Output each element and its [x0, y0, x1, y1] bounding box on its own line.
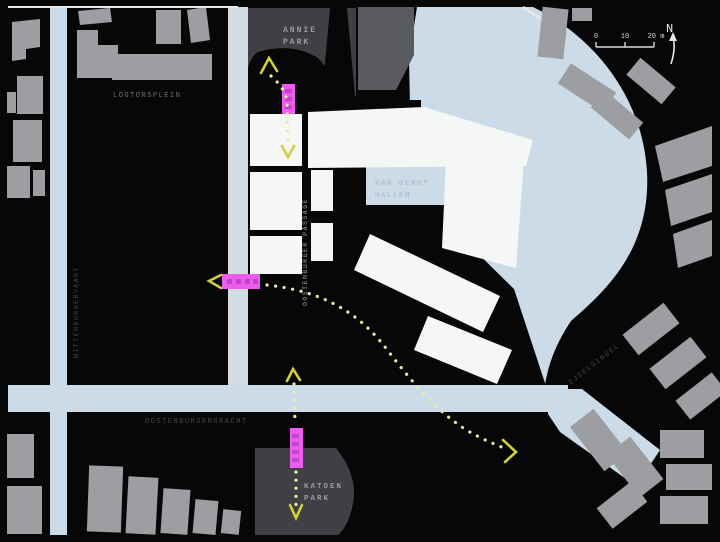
marker-dot: [227, 279, 232, 284]
site-building-a3: [250, 236, 302, 274]
building: [78, 8, 112, 25]
site-building-b2: [311, 223, 333, 261]
map-canvas: ANNIE PARK LOGTORSPLEIN WITTENBURGERVAAR…: [0, 0, 720, 542]
canal-west: [50, 7, 67, 535]
marker-dot: [236, 279, 241, 284]
marker-dot: [245, 279, 250, 284]
site-plan-map: ANNIE PARK LOGTORSPLEIN WITTENBURGERVAAR…: [0, 0, 720, 542]
street-center-strip: [228, 7, 248, 389]
marker-dot: [292, 442, 299, 446]
marker-dot: [292, 450, 299, 454]
halls-label-line1: VAN GENDT: [375, 180, 429, 188]
street-south-label: OOSTENBURGERGRACHT: [145, 418, 248, 426]
marker-dot: [292, 434, 299, 438]
scale-tick-10: 10: [621, 33, 629, 41]
marker-dot: [285, 89, 292, 93]
site-building-a2: [250, 172, 302, 230]
marker-dot: [253, 279, 258, 284]
scale-tick-20: 20 m: [648, 33, 665, 41]
building: [7, 166, 30, 198]
north-label: N: [666, 22, 673, 36]
park-south-label-line1: KATOEN: [304, 483, 343, 491]
frame-top-line: [8, 6, 238, 8]
marker-dot: [292, 458, 299, 462]
site-building-a1: [250, 114, 302, 166]
building: [660, 496, 708, 524]
passage-label: OOSTENBURGER PASSAGE: [302, 198, 309, 306]
building: [537, 7, 568, 59]
building-notch: [98, 30, 118, 45]
square-label: LOGTORSPLEIN: [113, 92, 181, 100]
park-north-label-line1: ANNIE: [283, 26, 317, 35]
building: [7, 92, 16, 113]
site-building-b1: [311, 170, 333, 211]
scale-tick-0: 0: [594, 33, 598, 41]
building: [126, 476, 159, 534]
building: [33, 170, 45, 196]
street-south-band: [8, 385, 568, 412]
park-north-label-line2: PARK: [283, 38, 310, 47]
building: [13, 120, 42, 162]
building: [156, 10, 181, 44]
building: [160, 488, 190, 535]
building: [17, 76, 43, 114]
building: [666, 464, 712, 490]
building: [193, 499, 219, 535]
building: [7, 486, 42, 534]
halls-label-line2: HALLEN: [375, 192, 411, 200]
building: [187, 7, 210, 43]
canal-west-label: WITTENBURGERVAART: [73, 266, 80, 358]
building: [221, 509, 241, 535]
park-south-label-line2: PARK: [304, 495, 330, 503]
building: [660, 430, 704, 458]
building: [112, 54, 212, 80]
building: [572, 8, 592, 21]
building: [7, 434, 34, 478]
building: [87, 465, 123, 532]
